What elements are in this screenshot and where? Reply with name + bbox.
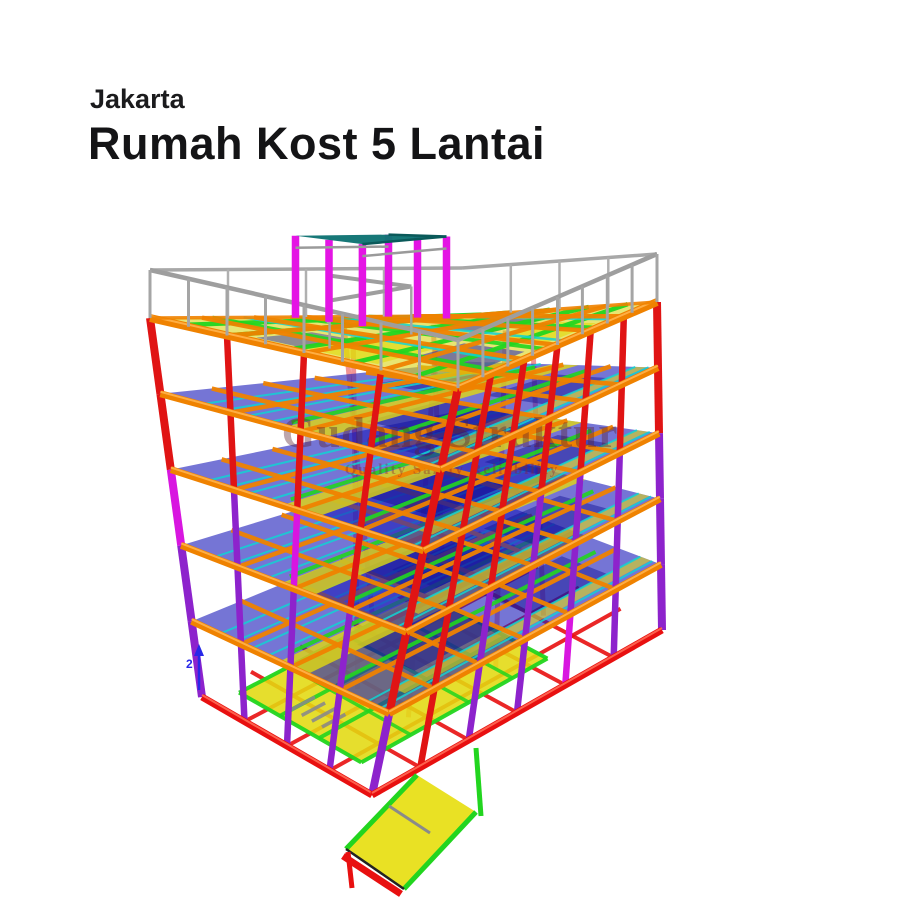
screenshot-canvas: Jakarta Rumah Kost 5 Lantai Gudang Struk… bbox=[0, 0, 900, 900]
axis-label: 2 bbox=[186, 657, 193, 671]
structural-model-3d: Gudang StrukturQuality Safety Reliabilit… bbox=[0, 0, 900, 900]
